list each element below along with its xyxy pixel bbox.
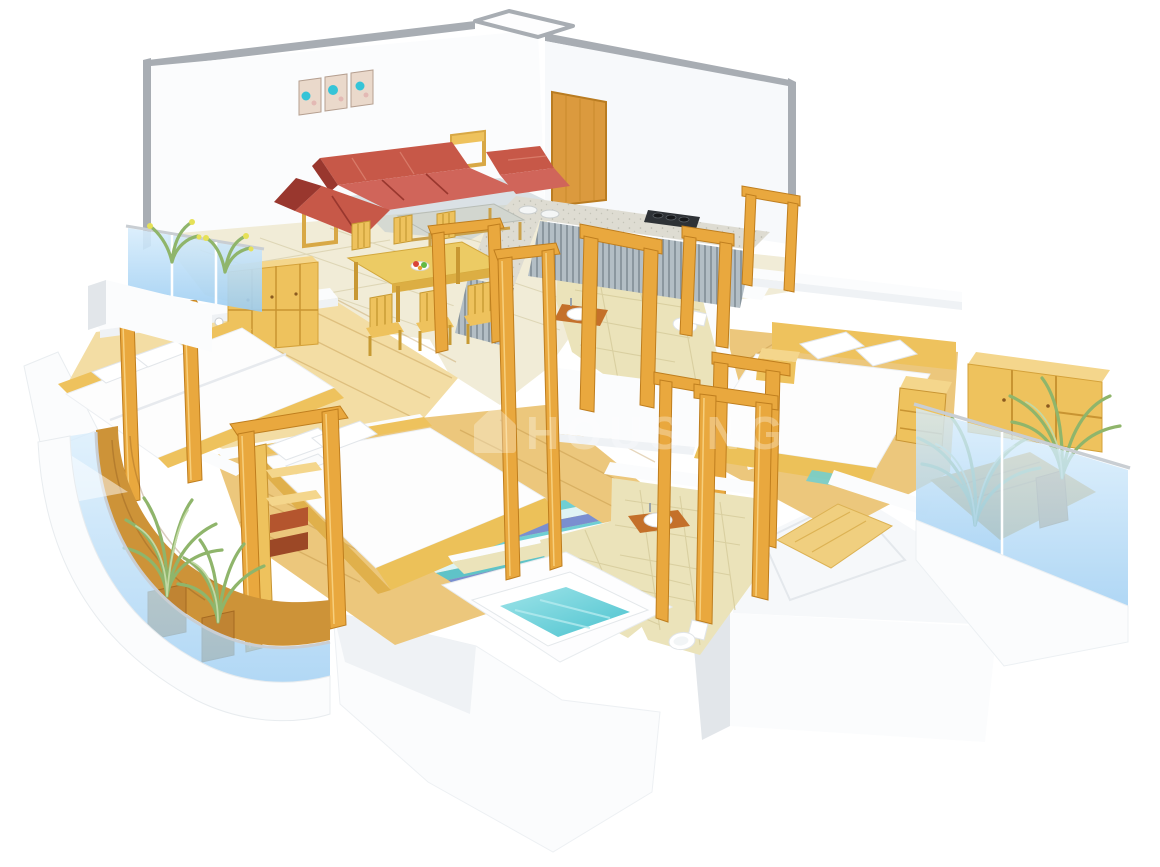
floor-plan-canvas: HOUSING — [0, 0, 1160, 867]
sink-basin — [541, 210, 559, 218]
dining-chair — [394, 215, 412, 244]
floor-plan-render: HOUSING — [0, 0, 1160, 867]
watermark-text: HOUSING — [526, 407, 790, 459]
dining-chair — [352, 221, 370, 250]
left-wall-edge — [143, 58, 151, 250]
plinth-right-front — [730, 613, 997, 742]
fruit-plate — [411, 261, 429, 271]
sink-basin — [519, 206, 537, 214]
kitchen-door — [552, 92, 606, 206]
balcony-parapet-side — [88, 280, 106, 330]
duct-shaft-top — [475, 11, 573, 37]
